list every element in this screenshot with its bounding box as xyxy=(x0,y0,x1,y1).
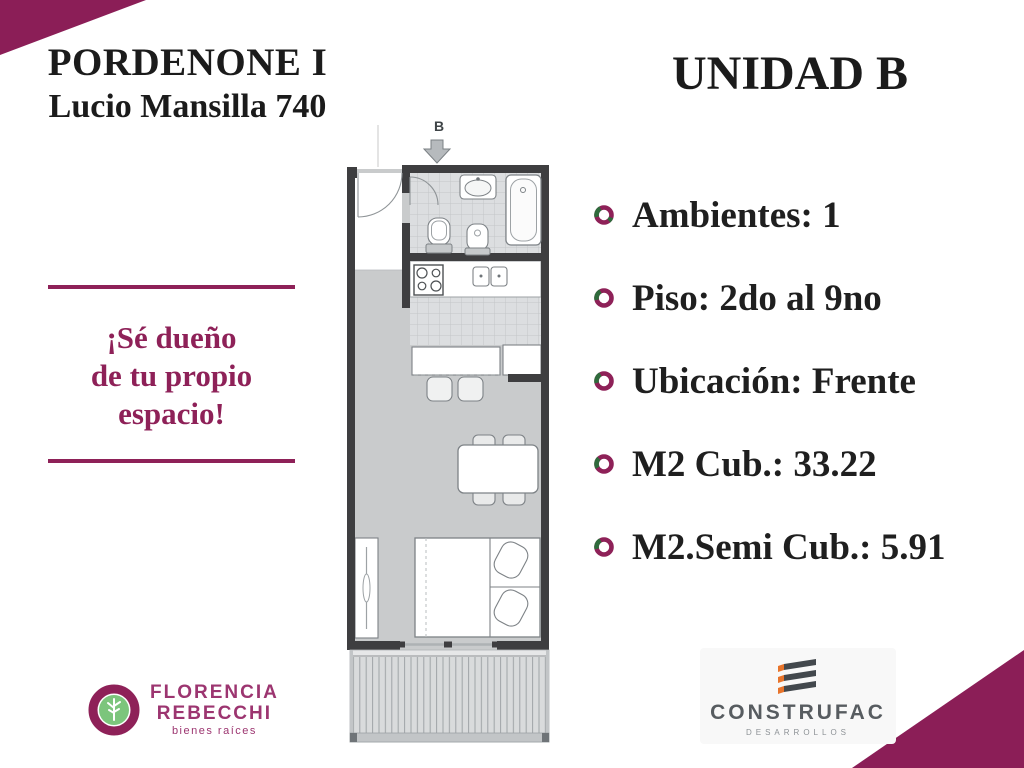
entry-hall-floor xyxy=(355,173,402,270)
island-counter xyxy=(412,345,541,375)
stove xyxy=(414,265,443,295)
feature-item: Ambientes: 1 xyxy=(593,192,945,238)
project-title: PORDENONE I xyxy=(10,42,365,85)
kitchen-counter xyxy=(410,261,541,297)
ring-bullet-icon xyxy=(593,536,615,558)
feature-label: Piso: 2do al 9no xyxy=(632,277,882,320)
bidet xyxy=(465,224,490,255)
agency-name-line2: REBECCHI xyxy=(157,703,272,724)
tree-icon xyxy=(88,684,140,736)
feature-item: M2.Semi Cub.: 5.91 xyxy=(593,524,945,570)
feature-item: Piso: 2do al 9no xyxy=(593,275,945,321)
address: Lucio Mansilla 740 xyxy=(10,88,365,126)
wardrobe xyxy=(355,538,378,638)
ring-bullet-icon xyxy=(593,204,615,226)
agency-tagline: bienes raíces xyxy=(172,725,257,737)
feature-item: Ubicación: Frente xyxy=(593,358,945,404)
feature-list: Ambientes: 1 Piso: 2do al 9no Ubicación:… xyxy=(593,192,945,607)
flyer: PORDENONE I Lucio Mansilla 740 UNIDAD B … xyxy=(0,0,1024,768)
balcony xyxy=(350,650,549,742)
dining-table xyxy=(458,445,538,493)
developer-tagline: DESARROLLOS xyxy=(746,728,850,737)
ring-bullet-icon xyxy=(593,287,615,309)
ring-bullet-icon xyxy=(593,370,615,392)
toilet xyxy=(426,218,452,253)
entrance-arrow-icon xyxy=(424,140,450,163)
agency-logo: FLORENCIA REBECCHI bienes raíces xyxy=(88,682,279,737)
feature-item: M2 Cub.: 33.22 xyxy=(593,441,945,487)
feature-label: M2.Semi Cub.: 5.91 xyxy=(632,526,945,569)
entrance-label: B xyxy=(428,118,450,134)
agency-text: FLORENCIA REBECCHI bienes raíces xyxy=(150,682,279,737)
bathtub xyxy=(506,175,541,245)
title-block: PORDENONE I Lucio Mansilla 740 xyxy=(10,42,365,126)
feature-label: Ambientes: 1 xyxy=(632,194,841,237)
bathroom-sink xyxy=(460,175,496,199)
bed xyxy=(415,538,540,637)
unit-title: UNIDAD B xyxy=(640,46,940,101)
ring-bullet-icon xyxy=(593,453,615,475)
agency-name-line1: FLORENCIA xyxy=(150,682,279,703)
floor-plan xyxy=(340,115,555,755)
slogan: ¡Sé dueño de tu propio espacio! xyxy=(48,285,295,463)
slogan-line-2: de tu propio xyxy=(48,357,295,395)
slogan-line-3: espacio! xyxy=(48,395,295,433)
developer-logo: CONSTRUFAC DESARROLLOS xyxy=(700,648,896,744)
developer-name: CONSTRUFAC xyxy=(710,701,886,725)
construfac-logo-icon xyxy=(770,655,826,699)
feature-label: M2 Cub.: 33.22 xyxy=(632,443,877,486)
feature-label: Ubicación: Frente xyxy=(632,360,916,403)
slogan-line-1: ¡Sé dueño xyxy=(48,319,295,357)
